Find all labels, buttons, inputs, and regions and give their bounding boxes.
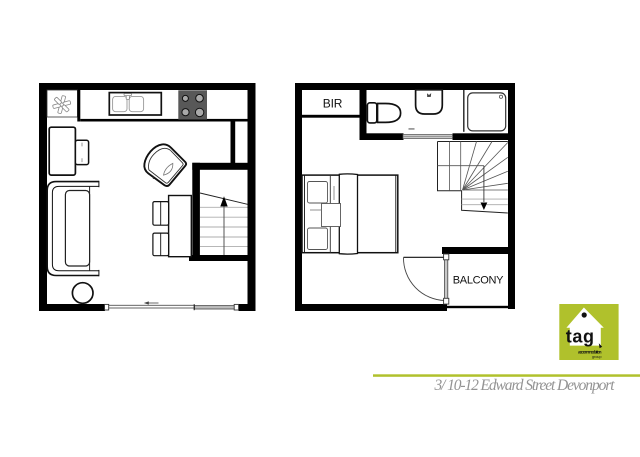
svg-text:tag: tag	[566, 327, 595, 347]
svg-text:accommodation: accommodation	[578, 350, 602, 355]
svg-text:3/ 10-12 Edward Street Devonpo: 3/ 10-12 Edward Street Devonport	[434, 377, 616, 394]
svg-text:group: group	[592, 355, 602, 359]
svg-text:BALCONY: BALCONY	[453, 275, 504, 287]
svg-text:BIR: BIR	[323, 97, 343, 111]
